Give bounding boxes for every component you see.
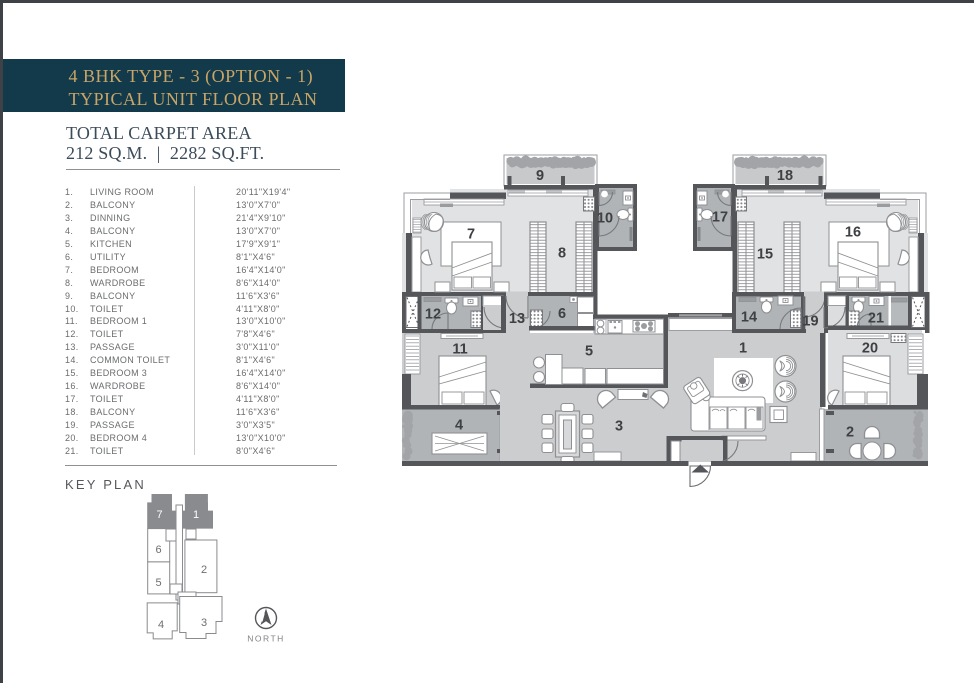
svg-text:17: 17 [712,210,728,226]
svg-text:20: 20 [862,341,878,357]
svg-text:4: 4 [158,619,164,631]
svg-text:6: 6 [155,544,161,556]
svg-text:8: 8 [558,246,566,262]
svg-text:3: 3 [201,617,207,629]
svg-text:11: 11 [452,342,467,358]
svg-text:13: 13 [509,311,525,327]
svg-text:4: 4 [455,418,463,434]
svg-text:6: 6 [558,306,566,322]
svg-text:7: 7 [156,509,162,521]
svg-text:1: 1 [193,509,199,521]
svg-text:3: 3 [615,419,623,435]
svg-text:7: 7 [467,227,475,243]
svg-text:2: 2 [846,425,854,441]
svg-text:5: 5 [585,344,593,360]
svg-text:NORTH: NORTH [247,634,285,644]
svg-text:15: 15 [757,247,773,263]
svg-text:10: 10 [597,211,613,227]
svg-text:2: 2 [201,564,207,576]
svg-text:14: 14 [741,310,757,326]
svg-text:9: 9 [536,168,544,184]
svg-text:1: 1 [739,341,747,357]
svg-text:16: 16 [845,225,861,241]
svg-text:5: 5 [155,577,161,589]
svg-text:12: 12 [425,307,441,323]
svg-text:19: 19 [802,314,818,330]
svg-text:21: 21 [868,311,884,327]
svg-text:18: 18 [777,168,793,184]
